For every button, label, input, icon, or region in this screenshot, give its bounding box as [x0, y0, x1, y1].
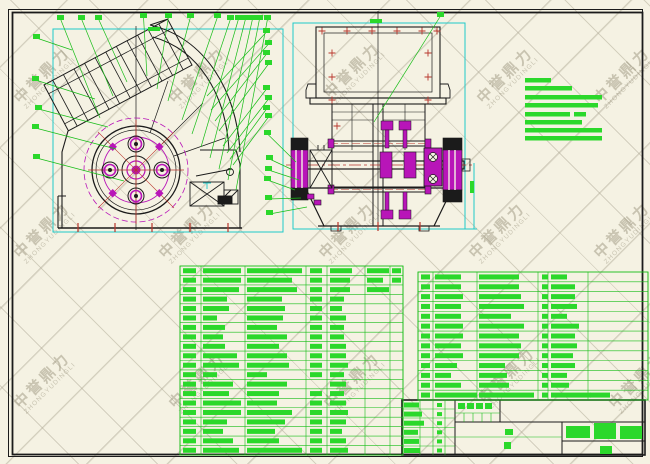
parts-table-left: [180, 266, 403, 455]
cell-material: [551, 304, 577, 309]
callout-balloon: [263, 50, 270, 55]
cell-qty: [542, 393, 548, 398]
callout-balloon: [32, 124, 39, 129]
cell-code: [435, 373, 451, 378]
cell-qty: [310, 410, 322, 415]
cell-name: [247, 344, 279, 349]
cell-qty: [310, 306, 322, 311]
cell-seq: [421, 284, 430, 289]
cell-qty: [310, 344, 322, 349]
note-line: [525, 95, 602, 100]
drawing-title-text: [600, 446, 612, 454]
callout-balloon: [265, 113, 272, 118]
cell-material: [330, 372, 344, 377]
cell-code: [203, 429, 223, 434]
rotor: [84, 118, 188, 224]
red-plus-mark: [319, 28, 326, 35]
cell-name: [479, 363, 505, 368]
cell-material: [551, 294, 575, 299]
drawing-title-text: [594, 423, 616, 439]
cell-code: [203, 297, 227, 302]
cell-name: [479, 353, 519, 358]
callout-balloon: [266, 155, 273, 160]
cell-name: [247, 315, 283, 320]
cell-qty: [310, 334, 322, 339]
cell-code: [203, 401, 241, 406]
cell-name: [479, 274, 519, 279]
cell-seq: [183, 382, 196, 387]
callout-balloon: [57, 15, 64, 20]
cell-name: [247, 297, 282, 302]
leader-line: [219, 64, 269, 131]
red-plus-mark: [425, 50, 432, 57]
leader-line: [230, 109, 267, 159]
header-char: [476, 403, 483, 409]
cell-material: [330, 315, 346, 320]
cell-name: [247, 391, 279, 396]
cell-qty: [542, 353, 548, 358]
cell-code: [435, 274, 461, 279]
cell-qty: [542, 383, 548, 388]
cell-seq: [421, 274, 430, 279]
callout-balloon: [263, 85, 270, 90]
cell-qty: [542, 274, 548, 279]
cell-material: [551, 353, 573, 358]
note-line: [574, 112, 586, 117]
callout-balloon: [265, 95, 272, 100]
cell-seq: [183, 363, 196, 368]
value-text: [505, 429, 513, 435]
cell-material: [330, 287, 350, 292]
callout-balloon: [264, 176, 271, 181]
cell-qty: [542, 304, 548, 309]
cell-material: [551, 373, 567, 378]
left-bearing-bracket: [310, 145, 332, 188]
red-plus-mark: [394, 28, 401, 35]
callout-balloon: [263, 105, 270, 110]
cell-code: [435, 294, 463, 299]
cell-name: [247, 382, 287, 387]
cell-name: [479, 334, 519, 339]
header-char: [467, 403, 474, 409]
callout-balloon: [227, 15, 234, 20]
cell-name: [479, 294, 521, 299]
cell-name: [479, 284, 519, 289]
callout-balloon: [140, 13, 147, 18]
cell-material: [330, 448, 348, 453]
side-view-drawing: [44, 19, 283, 232]
cell-material: [330, 382, 346, 387]
cell-code: [203, 363, 239, 368]
cell-qty: [542, 334, 548, 339]
shaft-hubs: [328, 139, 431, 194]
signature-text: [404, 448, 420, 453]
cell-seq: [183, 278, 196, 283]
cell-code: [203, 315, 217, 320]
callout-balloon: [187, 13, 194, 18]
front-view-bounding-box: [293, 23, 465, 229]
cell-seq: [183, 306, 196, 311]
cell-qty: [310, 401, 322, 406]
callout-balloon: [266, 210, 273, 215]
cell-code: [203, 344, 225, 349]
cell-code: [203, 306, 229, 311]
leader-line: [207, 32, 267, 96]
cell-code: [203, 382, 233, 387]
cell-remark2: [392, 278, 401, 283]
signature-tick: [437, 403, 442, 407]
cell-material: [330, 344, 346, 349]
callout-balloon: [264, 15, 271, 20]
cell-qty: [542, 363, 548, 368]
cell-material: [330, 353, 346, 358]
callout-balloon: [265, 60, 272, 65]
left-pulley: [291, 138, 321, 205]
cell-material: [330, 278, 350, 283]
cell-name: [247, 438, 279, 443]
cell-seq: [183, 297, 196, 302]
cell-name: [479, 373, 507, 378]
cell-seq: [421, 314, 430, 319]
right-pulley: [443, 138, 470, 202]
cell-seq: [183, 401, 196, 406]
callout-balloon: [235, 15, 242, 20]
cell-qty: [542, 294, 548, 299]
cell-material: [330, 391, 344, 396]
red-plus-mark: [329, 74, 336, 81]
cell-remark: [367, 278, 383, 283]
cell-remark2: [392, 268, 401, 273]
callout-balloon: [249, 15, 256, 20]
cell-code: [203, 278, 241, 283]
cell-seq: [183, 429, 196, 434]
leader-line: [374, 16, 441, 122]
callout-balloon: [214, 13, 221, 18]
callout-balloon: [35, 105, 42, 110]
cell-seq: [421, 304, 430, 309]
cell-seq: [421, 343, 430, 348]
cell-material: [551, 334, 575, 339]
signature-tick: [437, 421, 442, 425]
housing-outline: [58, 131, 240, 228]
cell-code: [203, 391, 229, 396]
cell-seq: [421, 363, 430, 368]
signature-text: [404, 430, 418, 435]
leader-line: [215, 54, 267, 121]
header-char: [485, 403, 492, 409]
cell-seq: [183, 268, 196, 273]
note-line: [525, 136, 602, 141]
cell-code: [203, 419, 227, 424]
cell-qty: [310, 297, 322, 302]
leader-line: [182, 17, 218, 120]
cell-name: [247, 306, 285, 311]
signature-text: [404, 403, 419, 408]
cad-drawing-page: 中誉鼎力ZHONGYUDINGLI中誉鼎力ZHONGYUDINGLI中誉鼎力ZH…: [0, 0, 650, 464]
cell-name: [479, 324, 524, 329]
cell-seq: [421, 334, 430, 339]
callout-balloon: [165, 13, 172, 18]
cell-code: [435, 314, 461, 319]
cell-code: [203, 268, 241, 273]
cell-name: [247, 278, 292, 283]
leader-line: [37, 38, 73, 50]
cell-material: [330, 334, 344, 339]
cell-name: [247, 448, 302, 453]
cell-seq: [183, 325, 196, 330]
cell-material: [551, 284, 575, 289]
leader-line: [211, 44, 269, 110]
cell-qty: [310, 429, 322, 434]
cell-code: [203, 410, 241, 415]
callout-balloon: [256, 15, 263, 20]
callout-balloon: [265, 195, 272, 200]
cell-name: [247, 372, 267, 377]
callout-balloon: [437, 12, 444, 17]
cell-code: [435, 393, 477, 398]
drawing-title-text: [620, 426, 642, 439]
leader-line: [270, 207, 308, 214]
cell-qty: [310, 268, 322, 273]
cell-qty: [310, 278, 322, 283]
dimension-text-block: [470, 181, 474, 193]
leader-line: [61, 19, 101, 118]
cell-material: [551, 363, 575, 368]
callout-balloon: [263, 28, 270, 33]
cell-name: [247, 363, 289, 368]
cell-code: [203, 287, 239, 292]
callout-balloon: [95, 15, 102, 20]
cell-name: [247, 410, 292, 415]
callout-balloon: [242, 15, 249, 20]
cell-seq: [421, 324, 430, 329]
cell-code: [203, 448, 239, 453]
cell-name: [247, 353, 287, 358]
leader-line: [36, 128, 117, 149]
cell-material: [330, 410, 348, 415]
cell-qty: [542, 343, 548, 348]
leader-line: [233, 117, 269, 165]
cell-code: [435, 304, 461, 309]
feed-chute: [44, 19, 192, 131]
cell-seq: [421, 373, 430, 378]
cell-name: [247, 429, 275, 434]
cell-seq: [421, 353, 430, 358]
red-plus-mark: [334, 123, 341, 130]
cell-qty: [310, 419, 322, 424]
cell-name: [247, 419, 285, 424]
cell-qty: [310, 287, 322, 292]
note-line: [525, 103, 598, 108]
cell-seq: [183, 344, 196, 349]
cell-remark: [367, 268, 389, 273]
dimension-text-block: [148, 27, 160, 31]
cell-code: [435, 363, 457, 368]
cell-material: [330, 306, 342, 311]
note-line: [525, 86, 572, 91]
cell-name: [479, 314, 511, 319]
cell-code: [435, 383, 461, 388]
cell-seq: [183, 438, 196, 443]
note-line: [525, 112, 570, 117]
cell-name: [247, 401, 277, 406]
right-bearing-block: [424, 148, 442, 186]
cell-qty: [310, 353, 322, 358]
mechanism-cyan-mark: [203, 183, 211, 189]
cell-qty: [310, 315, 322, 320]
cell-seq: [183, 419, 196, 424]
dimension-text-block: [370, 19, 382, 23]
sheet-frame: [9, 10, 643, 457]
cell-qty: [310, 372, 322, 377]
cell-seq: [421, 383, 430, 388]
cell-code: [435, 324, 463, 329]
callout-balloon: [264, 130, 271, 135]
cell-seq: [183, 287, 196, 292]
signature-tick: [437, 412, 442, 416]
drawing-title-text: [566, 426, 590, 438]
cell-material: [551, 314, 567, 319]
cell-code: [435, 343, 461, 348]
leader-line: [236, 19, 268, 190]
housing-arc: [150, 19, 240, 152]
red-plus-mark: [329, 50, 336, 57]
cell-material: [551, 393, 591, 398]
value-text: [504, 442, 511, 449]
cell-seq: [183, 353, 196, 358]
cell-code: [435, 353, 463, 358]
side-view-bounding-box: [53, 29, 283, 232]
cell-name: [479, 383, 509, 388]
cell-qty: [542, 373, 548, 378]
signature-text: [404, 421, 424, 426]
technical-notes: [525, 78, 602, 141]
cell-code: [203, 353, 237, 358]
cell-name: [247, 268, 302, 273]
cell-seq: [183, 410, 196, 415]
cell-material: [330, 419, 346, 424]
cell-code: [203, 372, 217, 377]
front-view-drawing: [286, 11, 477, 231]
cell-name: [479, 304, 524, 309]
cell-material: [330, 429, 342, 434]
signature-text: [404, 412, 422, 417]
cell-material: [330, 297, 344, 302]
parts-table-right: [418, 272, 648, 400]
note-line: [525, 128, 602, 133]
cell-name: [247, 334, 287, 339]
leader-line: [201, 19, 239, 147]
cell-material: [330, 325, 344, 330]
cell-qty: [310, 448, 322, 453]
signature-tick: [437, 449, 442, 453]
red-plus-mark: [419, 28, 426, 35]
red-plus-mark: [425, 74, 432, 81]
cell-material: [551, 343, 577, 348]
cell-name: [479, 343, 521, 348]
cell-material: [330, 438, 346, 443]
cell-qty: [310, 325, 322, 330]
cell-qty: [542, 284, 548, 289]
cell-name: [479, 393, 534, 398]
cell-remark: [590, 393, 610, 398]
note-line: [525, 78, 551, 83]
signature-tick: [437, 430, 442, 434]
cell-seq: [183, 391, 196, 396]
front-view-dim-extension: [465, 163, 477, 229]
leader-line: [270, 159, 294, 170]
signature-tick: [437, 439, 442, 443]
cell-seq: [421, 393, 430, 398]
cell-name: [247, 287, 297, 292]
cell-seq: [183, 372, 196, 377]
cell-qty: [542, 324, 548, 329]
cell-seq: [183, 315, 196, 320]
cell-seq: [183, 334, 196, 339]
cell-code: [435, 334, 463, 339]
cell-code: [203, 334, 223, 339]
callout-balloon: [33, 154, 40, 159]
cell-remark: [367, 287, 389, 292]
callout-balloon: [78, 15, 85, 20]
signature-text: [404, 439, 419, 444]
cell-code: [203, 325, 225, 330]
cell-material: [551, 324, 579, 329]
cell-material: [330, 268, 352, 273]
cell-code: [203, 438, 233, 443]
red-plus-mark: [344, 28, 351, 35]
cell-seq: [421, 294, 430, 299]
callout-balloon: [265, 40, 272, 45]
cad-canvas: [0, 0, 650, 464]
cell-material: [330, 363, 348, 368]
cell-material: [330, 401, 346, 406]
callout-balloon: [33, 34, 40, 39]
header-char: [458, 403, 465, 409]
note-line: [525, 120, 582, 125]
red-plus-mark: [369, 28, 376, 35]
callout-balloon: [32, 76, 39, 81]
cell-material: [551, 274, 567, 279]
callout-balloon: [265, 166, 272, 171]
cell-code: [435, 284, 461, 289]
cell-qty: [310, 438, 322, 443]
cell-qty: [310, 391, 322, 396]
cell-qty: [310, 363, 322, 368]
cell-material: [551, 383, 569, 388]
cell-seq: [183, 448, 196, 453]
cell-qty: [542, 314, 548, 319]
cell-name: [247, 325, 277, 330]
adjusting-mechanism: [190, 169, 238, 207]
